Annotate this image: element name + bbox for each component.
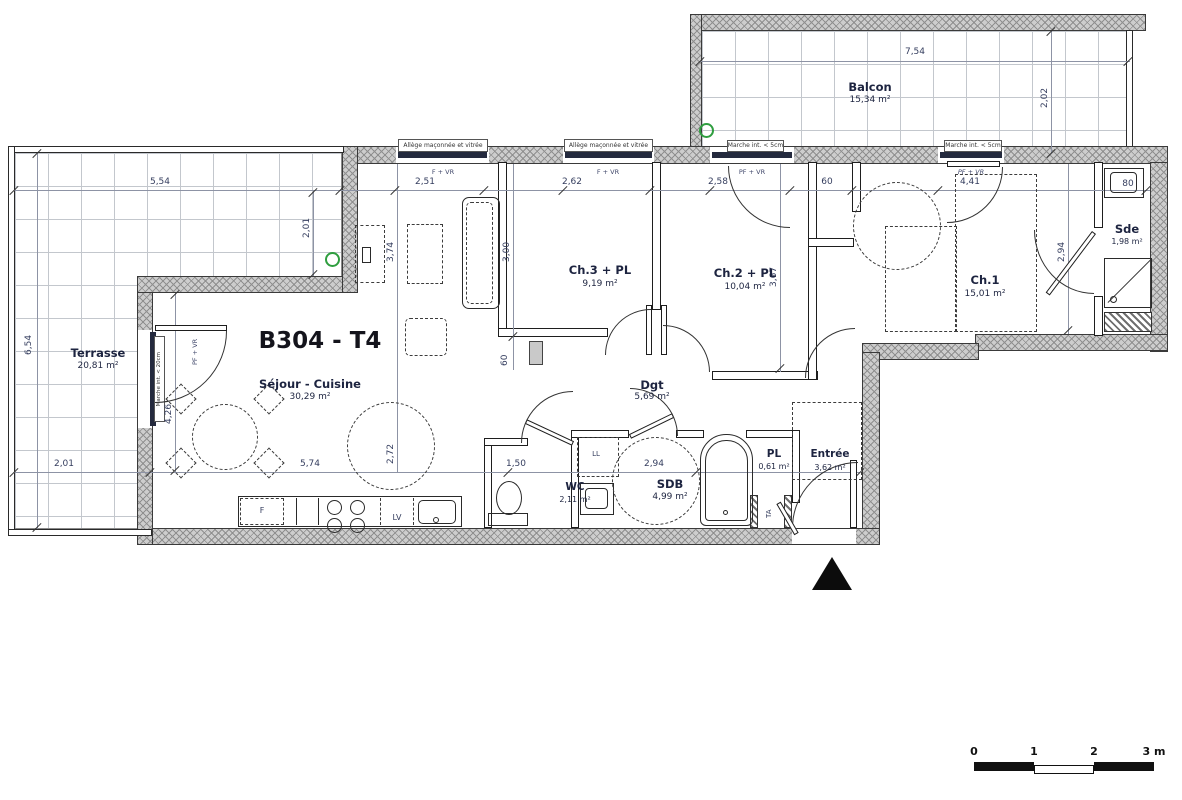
room-area-balcon: 15,34 m²	[815, 95, 925, 105]
dim-terrace-d2: 2,01	[44, 459, 84, 469]
window-2	[565, 152, 652, 158]
terrace-parapet-top	[8, 146, 344, 153]
door-arc-terrace	[155, 331, 227, 403]
allege-label-1: Allège maçonnée et vitrée	[398, 139, 488, 152]
allege-label-2: Allège maçonnée et vitrée	[564, 139, 653, 152]
wall-sdb-top-right	[676, 430, 704, 438]
page-title: B304 - T4	[235, 328, 405, 354]
wall-ch1-sde-bottom	[1094, 296, 1103, 336]
room-label-entree: Entrée	[795, 448, 865, 460]
room-area-ch3: 9,19 m²	[545, 279, 655, 289]
dim-ch3-niche: 60	[500, 345, 510, 375]
room-label-sde: Sde	[1102, 222, 1152, 236]
room-area-sdb: 4,99 m²	[638, 492, 702, 502]
hob-burner	[350, 518, 365, 533]
wall-ch1-sde-top	[1094, 162, 1103, 228]
floor-plan: Allège maçonnée et vitrée Allège maçonné…	[0, 0, 1182, 800]
dim-line-balcony	[700, 61, 1130, 62]
balcony-right-parapet	[1126, 30, 1133, 154]
scale-bar-segment	[974, 762, 1034, 771]
dim-line-ch3-v	[513, 164, 514, 370]
room-label-pl: PL	[752, 448, 796, 460]
door-arc-wc	[521, 391, 573, 443]
shower-drain	[1110, 296, 1117, 303]
dining-table	[192, 404, 258, 470]
bathtub-drain	[723, 510, 728, 515]
tag-fridge: F	[252, 506, 272, 515]
dim-terrace-d1: 2,01	[302, 206, 312, 250]
turning-circle-living	[347, 402, 435, 490]
counter-divider	[296, 498, 297, 525]
scale-tick-0: 0	[962, 745, 986, 758]
tag-ll: LL	[584, 450, 608, 458]
terrace-parapet-bottom	[8, 529, 152, 536]
wall-duct-stub	[808, 238, 854, 247]
hob-burner	[350, 500, 365, 515]
coffee-table	[407, 224, 443, 284]
window-type-1: F + VR	[413, 168, 473, 176]
dim-terrace-h: 6,54	[24, 320, 34, 370]
room-label-ch2: Ch.2 + PL	[685, 266, 805, 280]
armchair	[405, 318, 447, 356]
entry-door-sill	[792, 528, 856, 545]
room-label-ch3: Ch.3 + PL	[545, 263, 655, 277]
room-area-ch1: 15,01 m²	[940, 289, 1030, 299]
hob-burner	[327, 518, 342, 533]
window-4	[940, 152, 1002, 158]
duct-box	[529, 341, 543, 365]
bottom-wall	[150, 528, 880, 545]
room-label-balcon: Balcon	[815, 80, 925, 94]
wall-ch2-bottom	[712, 371, 818, 380]
scale-tick-2: 2	[1082, 745, 1106, 758]
dim-kitchen-w: 5,74	[290, 459, 330, 469]
scale-bar-segment	[1034, 765, 1094, 774]
entrance-arrow	[812, 557, 852, 590]
room-label-sejour: Séjour - Cuisine	[250, 377, 370, 391]
dim-ch3-d: 3,00	[502, 230, 512, 274]
counter-divider	[318, 498, 319, 525]
window-1	[398, 152, 487, 158]
room-area-ch2: 10,04 m²	[685, 282, 805, 292]
ch1-bottom-wall	[975, 334, 1168, 351]
terrace-parapet-left	[8, 146, 15, 536]
door-arc-corridor	[805, 328, 855, 378]
room-label-sdb: SDB	[638, 477, 702, 491]
door-arc-ch2	[663, 325, 710, 372]
marker-circle-balcony	[699, 123, 714, 138]
door-arc-sde	[1034, 230, 1094, 294]
hob-burner	[327, 500, 342, 515]
dim-line-balcony-v	[1051, 31, 1052, 154]
marche5-label-1: Marche int. < 5cm	[727, 140, 784, 152]
dim-win2: 2,62	[547, 177, 597, 187]
tv-screen	[362, 247, 371, 263]
window-3	[712, 152, 792, 158]
door-arc-ch3	[605, 309, 651, 355]
dim-terrace-w: 5,54	[130, 177, 190, 187]
balcony-top-wall	[690, 14, 1146, 31]
top-left-wall	[137, 276, 358, 293]
dim-balcony-w: 7,54	[880, 47, 950, 57]
door-arc-ch2-window	[728, 166, 790, 228]
right-wall	[1150, 162, 1168, 352]
dim-win1: 2,51	[400, 177, 450, 187]
bathtub-inner	[705, 440, 748, 521]
scale-tick-1: 1	[1022, 745, 1046, 758]
room-area-wc: 2,11 m²	[545, 495, 605, 504]
window-type-2: F + VR	[578, 168, 638, 176]
room-area-sde: 1,98 m²	[1100, 237, 1154, 246]
room-area-terrasse: 20,81 m²	[48, 361, 148, 371]
room-label-dgt: Dgt	[622, 378, 682, 392]
marche5-label-2: Marche int. < 5cm	[944, 140, 1002, 152]
room-label-ch1: Ch.1	[940, 273, 1030, 287]
room-area-entree: 3,62 m²	[795, 463, 865, 472]
sde-duct	[1104, 312, 1152, 332]
dim-line-terrace-right-v	[313, 190, 314, 276]
dim-balcony-d: 2,02	[1040, 76, 1050, 120]
dim-sejour-d: 3,74	[386, 230, 396, 274]
sofa-cushions	[466, 202, 493, 304]
room-label-wc: WC	[545, 481, 605, 493]
sde-washbasin-bowl	[1110, 172, 1137, 193]
sink-drain	[433, 517, 439, 523]
scale-tick-3: 3 m	[1134, 745, 1174, 758]
room-area-sejour: 30,29 m²	[250, 392, 370, 402]
room-area-dgt: 5,69 m²	[622, 392, 682, 402]
ch1-closet-zone	[955, 174, 1037, 332]
scale-bar-segment	[1094, 762, 1154, 771]
dim-duct: 60	[812, 177, 842, 187]
toilet-bowl	[496, 481, 522, 515]
tag-lv: LV	[385, 513, 409, 522]
tag-ta: TA	[765, 503, 773, 525]
dim-wc-w: 1,50	[498, 459, 534, 469]
room-label-terrasse: Terrasse	[48, 346, 148, 360]
marker-circle-living	[325, 252, 340, 267]
